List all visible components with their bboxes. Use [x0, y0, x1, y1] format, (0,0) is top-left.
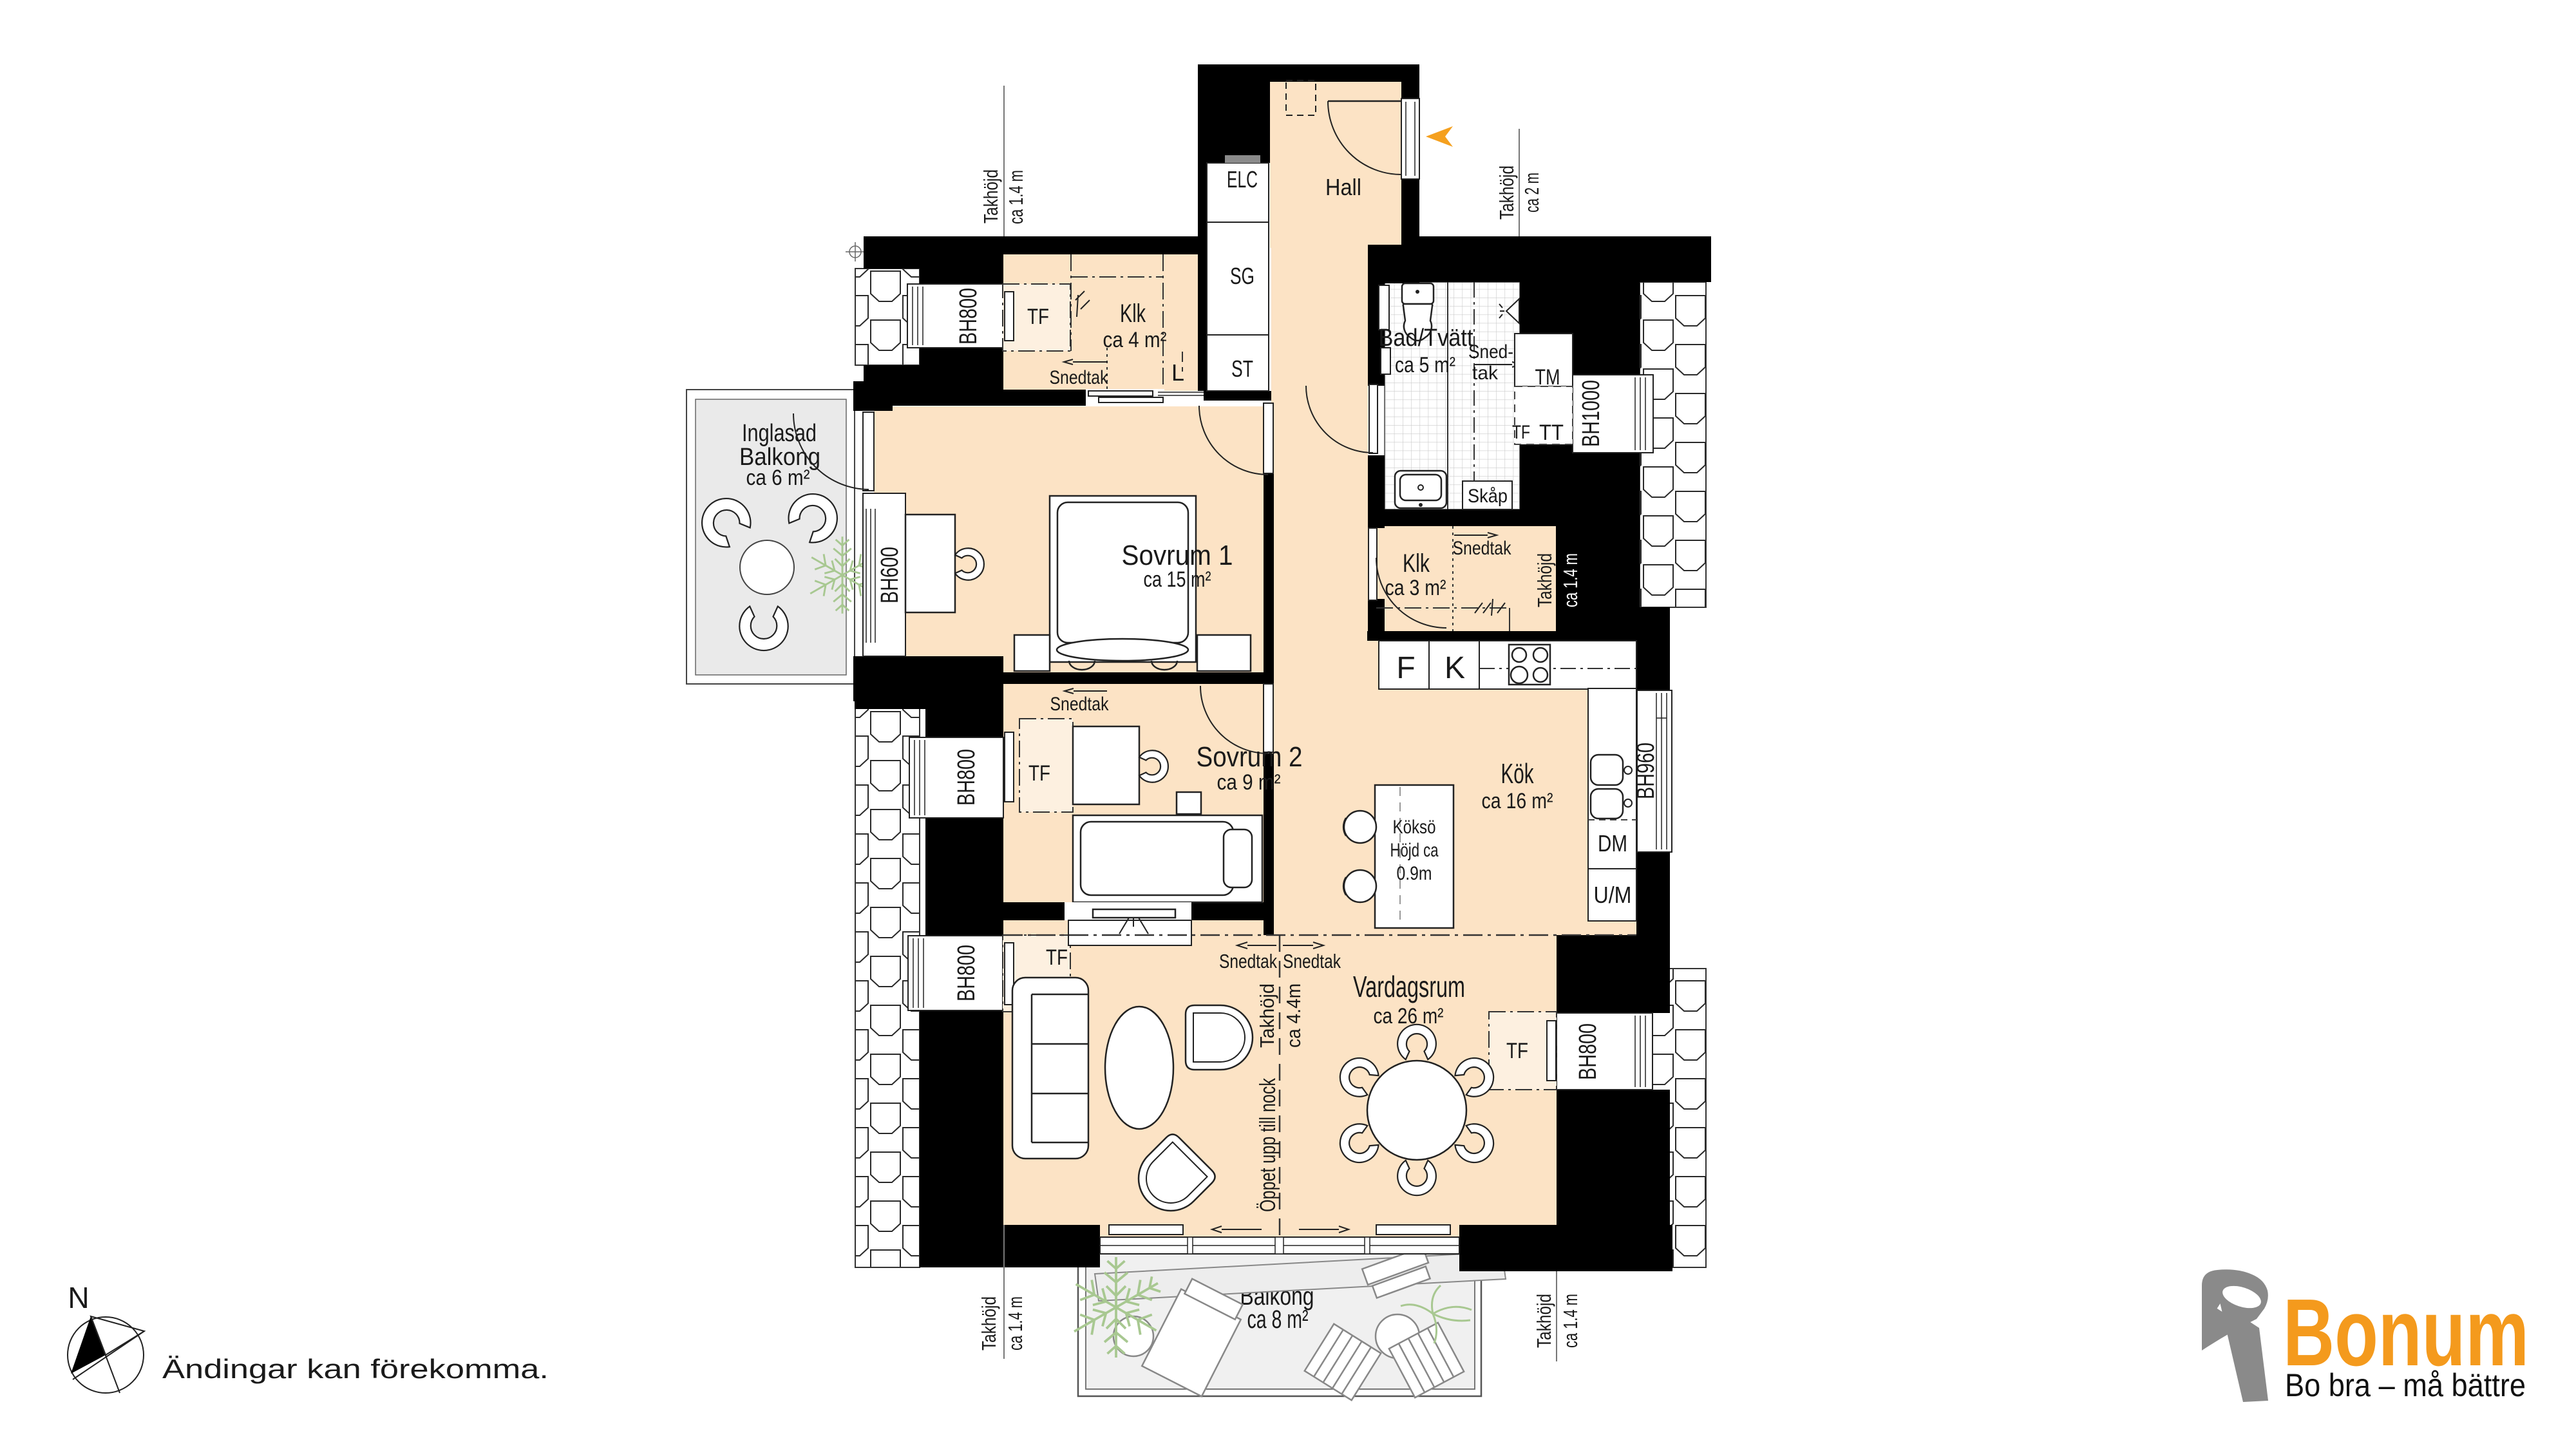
svg-text:TF: TF — [1027, 305, 1049, 329]
svg-text:BH800: BH800 — [953, 945, 980, 1001]
svg-text:Klk: Klk — [1120, 299, 1146, 328]
svg-text:ca 9 m²: ca 9 m² — [1217, 770, 1281, 795]
svg-text:TF: TF — [1046, 945, 1068, 970]
svg-text:Öppet upp till nock: Öppet upp till nock — [1256, 1077, 1280, 1212]
svg-text:TF: TF — [1028, 761, 1050, 786]
svg-text:Sned-: Sned- — [1468, 341, 1513, 363]
svg-text:ca 4.4m: ca 4.4m — [1282, 983, 1305, 1048]
svg-text:BH800: BH800 — [953, 749, 980, 806]
svg-text:Kök: Kök — [1501, 758, 1535, 790]
svg-text:L: L — [1171, 359, 1184, 386]
svg-text:Takhöjd: Takhöjd — [1495, 166, 1518, 220]
svg-text:BH800: BH800 — [1575, 1023, 1602, 1080]
svg-text:ST: ST — [1231, 355, 1253, 382]
svg-text:Höjd ca: Höjd ca — [1390, 840, 1439, 861]
svg-text:Inglasad: Inglasad — [742, 420, 817, 447]
svg-text:ca 5 m²: ca 5 m² — [1395, 353, 1455, 377]
svg-text:Takhöjd: Takhöjd — [1256, 983, 1278, 1048]
svg-text:Takhöjd: Takhöjd — [978, 1296, 1000, 1350]
svg-text:TF: TF — [1512, 422, 1530, 443]
svg-text:F: F — [1396, 651, 1415, 685]
svg-text:ca 3 m²: ca 3 m² — [1385, 576, 1446, 600]
svg-text:Köksö: Köksö — [1393, 817, 1436, 838]
svg-text:ca 16 m²: ca 16 m² — [1482, 789, 1553, 813]
svg-text:ca 26 m²: ca 26 m² — [1374, 1004, 1444, 1028]
svg-text:TT: TT — [1539, 421, 1564, 445]
svg-text:U/M: U/M — [1594, 882, 1632, 908]
svg-text:Bo bra – må bättre: Bo bra – må bättre — [2285, 1367, 2526, 1403]
svg-text:Sovrum 1: Sovrum 1 — [1122, 540, 1233, 571]
svg-text:Snedtak: Snedtak — [1453, 538, 1512, 559]
svg-text:Hall: Hall — [1325, 174, 1361, 200]
svg-text:BH1000: BH1000 — [1578, 380, 1605, 447]
svg-text:K: K — [1444, 651, 1465, 685]
svg-text:SG: SG — [1230, 263, 1255, 289]
svg-text:ca 6 m²: ca 6 m² — [746, 466, 810, 490]
svg-text:N: N — [68, 1281, 89, 1314]
svg-text:Snedtak: Snedtak — [1050, 694, 1110, 715]
svg-text:Klk: Klk — [1403, 549, 1430, 578]
svg-text:BH600: BH600 — [876, 547, 904, 603]
svg-text:Vardagsrum: Vardagsrum — [1353, 970, 1465, 1003]
svg-text:Snedtak: Snedtak — [1283, 950, 1341, 972]
svg-text:ca 2 m: ca 2 m — [1520, 173, 1543, 213]
svg-text:ca 1.4 m: ca 1.4 m — [1559, 553, 1582, 607]
svg-text:Bad/Tvätt: Bad/Tvätt — [1379, 325, 1473, 352]
svg-text:Sovrum 2: Sovrum 2 — [1197, 741, 1303, 773]
svg-text:ca 8 m²: ca 8 m² — [1247, 1305, 1309, 1334]
svg-text:Takhöjd: Takhöjd — [1533, 553, 1556, 607]
svg-text:tak: tak — [1472, 363, 1499, 384]
svg-text:ca 1.4 m: ca 1.4 m — [1004, 1296, 1027, 1350]
svg-text:ca 1.4 m: ca 1.4 m — [1559, 1294, 1582, 1348]
svg-text:ca 4 m²: ca 4 m² — [1103, 328, 1167, 352]
svg-text:DM: DM — [1598, 830, 1627, 857]
svg-text:TF: TF — [1506, 1039, 1528, 1063]
svg-text:ELC: ELC — [1227, 166, 1258, 193]
svg-text:Takhöjd: Takhöjd — [980, 169, 1002, 223]
svg-text:Takhöjd: Takhöjd — [1533, 1294, 1555, 1348]
svg-text:Skåp: Skåp — [1468, 486, 1508, 507]
svg-text:BH800: BH800 — [955, 288, 982, 345]
svg-text:Ändingar kan förekomma.: Ändingar kan förekomma. — [162, 1354, 549, 1384]
svg-text:Snedtak: Snedtak — [1050, 367, 1109, 388]
svg-text:Snedtak: Snedtak — [1219, 950, 1277, 972]
svg-text:ca 15 m²: ca 15 m² — [1144, 567, 1211, 592]
svg-text:ca 1.4 m: ca 1.4 m — [1005, 170, 1027, 224]
svg-text:0.9m: 0.9m — [1397, 863, 1432, 884]
